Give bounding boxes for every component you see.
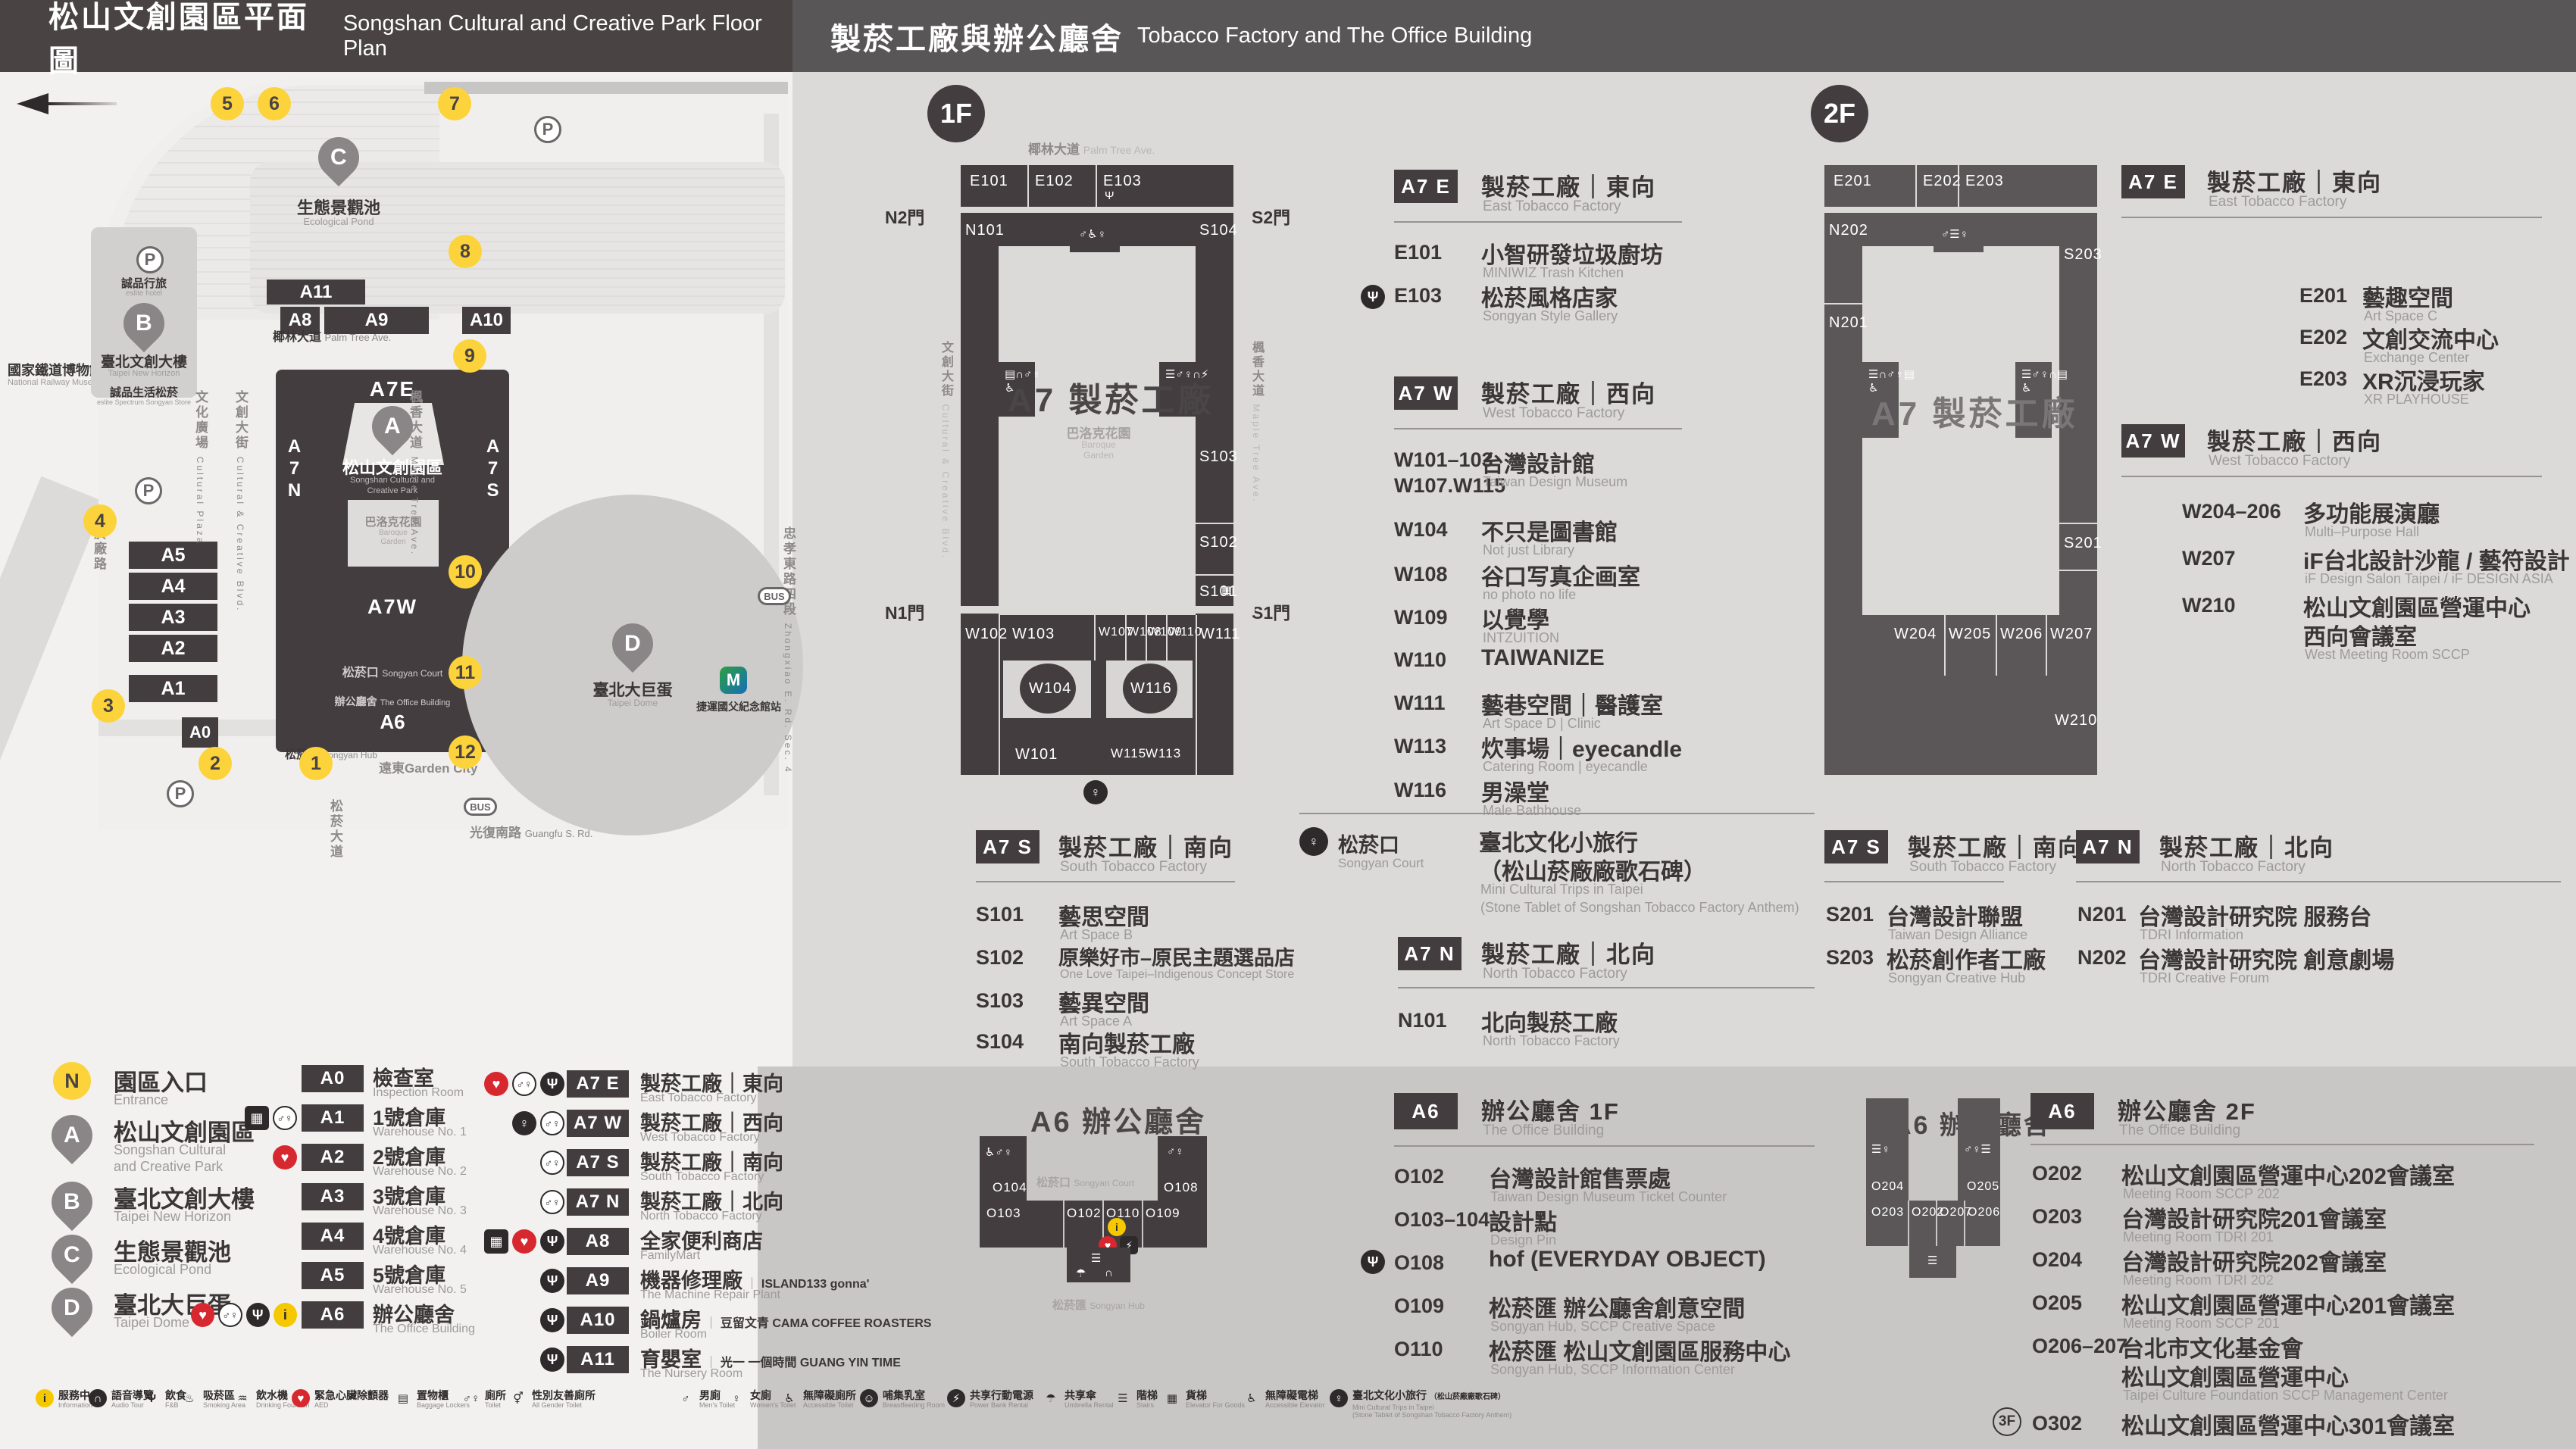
f1-a7w-item-code: W108: [1394, 563, 1448, 586]
f2-room-n201: N201: [1829, 314, 1868, 332]
f1-vline: [1196, 615, 1197, 775]
f2-divider: [2059, 570, 2097, 571]
legend-a3-en: Warehouse No. 3: [373, 1204, 467, 1218]
a6f1-court-label: 松菸口 Songyan Court: [1036, 1174, 1134, 1190]
legend-a7s-badge: A7 S: [567, 1149, 629, 1176]
a6f2-item-code: O203: [2032, 1205, 2082, 1229]
stairs-icon: ☰: [1114, 1389, 1132, 1407]
toilet-icon: ♂♀: [1167, 1145, 1184, 1158]
legend-a6-en: The Office Building: [373, 1323, 475, 1336]
facility-breastfeeding: ☺哺集乳室Breastfeeding Room: [860, 1389, 945, 1409]
f1-gate-s2: S2門: [1252, 203, 1290, 229]
f2-a7s-item-code: S203: [1826, 946, 1874, 970]
mrt-station-label: 捷運國父紀念館站: [686, 699, 792, 714]
baroque-label-en1: Baroque: [348, 529, 439, 537]
food-icon: Ψ: [1105, 189, 1114, 202]
eslite-hotel-zh: 誠品行旅: [98, 275, 189, 291]
f1-room-w102: W102: [965, 626, 1008, 643]
f2-room-n202: N202: [1829, 222, 1868, 239]
f1-a7s-title-zh: 製菸工廠｜南向: [1058, 829, 1233, 863]
inspection-a0: A0: [182, 717, 218, 748]
f1-a7w-item-en: Not just Library: [1483, 542, 1574, 558]
smoking-icon: ♨: [180, 1389, 199, 1407]
f1-room-e101: E101: [970, 173, 1008, 190]
entrance-7: 7: [438, 87, 471, 120]
f1-a7s-item-code: S102: [976, 946, 1024, 970]
elevator-icon: ▦: [1221, 583, 1232, 597]
f2-room-w210: W210: [2055, 712, 2097, 729]
a6f1-room-o103: O103: [986, 1206, 1021, 1221]
facility-aed: ♥緊急心臟除顫器AED: [292, 1389, 389, 1409]
facility-mens: ♂男廁Men's Toilet: [677, 1389, 735, 1409]
a7e-map-label: A7E: [276, 377, 509, 401]
umbrella-icon: ☂: [1042, 1389, 1060, 1407]
f2-a7s-title-zh: 製菸工廠｜南向: [1908, 829, 2083, 863]
food-icon: Ψ: [246, 1303, 270, 1327]
f1-a7w-item-code: W113: [1394, 735, 1446, 758]
legend-a7w-badge: A7 W: [567, 1110, 629, 1137]
f1-a7w-title-en: West Tobacco Factory: [1483, 405, 1624, 422]
legend-a8-badge: A8: [567, 1228, 629, 1255]
a6f2-item-en: Meeting Room TDRI 202: [2123, 1273, 2274, 1288]
parking-icon: P: [135, 477, 162, 504]
toilet-icon: ☰♀: [1871, 1142, 1890, 1156]
eslite-hotel-en: eslite hotel: [98, 289, 189, 298]
f1-a7w-item-en: Catering Room | eyecandle: [1483, 759, 1648, 775]
divider: [1394, 1145, 1815, 1147]
womens-icon: ♀: [727, 1389, 746, 1407]
f1-a7n-item-en: North Tobacco Factory: [1483, 1033, 1620, 1049]
legend-a7s-en: South Tobacco Factory: [640, 1170, 764, 1184]
a6f1-item-en: Taiwan Design Museum Ticket Counter: [1490, 1189, 1727, 1205]
a6f1-room-o109: O109: [1146, 1206, 1180, 1221]
legend-a7w-en: West Tobacco Factory: [640, 1131, 760, 1145]
legend-pin-d: D: [43, 1279, 101, 1337]
f1-vline: [1094, 615, 1096, 660]
f2-a7w-item-en: Multi–Purpose Hall: [2305, 524, 2419, 540]
legend-c-en: Ecological Pond: [114, 1262, 211, 1278]
f1-baroque-en2: Garden: [1046, 450, 1152, 461]
f1-a7w-item-en: Art Space D | Clinic: [1483, 716, 1601, 732]
legend-a7n-icons: ♂♀: [474, 1190, 564, 1214]
f2-a7w-title-zh: 製菸工廠｜西向: [2207, 423, 2382, 457]
aed-icon: ♥: [484, 1072, 508, 1096]
elevator-icon: ▦: [245, 1106, 269, 1130]
legend-a7e-en: East Tobacco Factory: [640, 1091, 757, 1105]
f2-a7n-item-en: TDRI Information: [2140, 927, 2243, 943]
f2-vline: [2046, 615, 2047, 676]
legend-a2-icons: ♥: [206, 1145, 297, 1170]
f2-room-divider: [1915, 165, 1917, 207]
legend-a7s-icons: ♂♀: [474, 1151, 564, 1175]
f1-room-s103: S103: [1199, 448, 1238, 466]
warehouse-a5: A5: [129, 542, 217, 569]
f2-plan-title: A7 製菸工廠: [1871, 386, 2077, 435]
f2-a7w-item-code: W207: [2182, 547, 2236, 570]
legend-a6-badge: A6: [302, 1301, 364, 1329]
legend-a7e-badge: A7 E: [567, 1070, 629, 1098]
legend-a1-icons: ▦♂♀: [206, 1106, 297, 1130]
a6f1-divider: [1063, 1201, 1064, 1248]
f1-a7w-item-en: Male Bathhouse: [1483, 803, 1581, 819]
f1-a7w-item-code: W104: [1394, 518, 1448, 542]
facility-mini-trips: ♀臺北文化小旅行 （松山菸廠廠歌石碑）Mini Cultural Trips i…: [1330, 1389, 1512, 1419]
warehouse-a1: A1: [129, 675, 217, 702]
a6f1-title-en: The Office Building: [1483, 1123, 1604, 1139]
entrance-8: 8: [449, 235, 482, 268]
entrance-3: 3: [92, 689, 125, 723]
f1-room-w103: W103: [1012, 626, 1055, 643]
audio-tour-icon: ∩: [89, 1389, 107, 1407]
elevator-icon: ▦: [484, 1229, 508, 1254]
a6f1-item-zh: hof (EVERYDAY OBJECT): [1489, 1247, 1766, 1273]
f2-a7n-title-en: North Tobacco Factory: [2161, 859, 2306, 876]
legend-entrance-en: Entrance: [114, 1092, 168, 1108]
f2-room-w207: W207: [2050, 626, 2093, 643]
f2-a7e-item-en: XR PLAYHOUSE: [2364, 392, 2469, 408]
a6f1-item-en: Songyan Hub, SCCP Information Center: [1490, 1362, 1735, 1378]
a6f2-divider: [1964, 1201, 1965, 1246]
f2-a7e-title-en: East Tobacco Factory: [2209, 194, 2346, 211]
f1-divider: [1196, 574, 1233, 576]
f1-baroque-en1: Baroque: [1046, 439, 1152, 450]
f1-a7e-title-en: East Tobacco Factory: [1483, 198, 1621, 215]
facility-goods-elevator: ▦貨梯Elevator For Goods: [1163, 1389, 1245, 1409]
f1-room-n101: N101: [965, 222, 1005, 239]
legend-a10-en: Boiler Room: [640, 1328, 707, 1341]
a6f1-title-zh: 辦公廳舍 1F: [1481, 1092, 1620, 1126]
a6f2-3f-circle: 3F: [1993, 1407, 2021, 1436]
legend-entrance-icon: N: [53, 1062, 91, 1100]
toilet-icon: ♂♀: [273, 1106, 297, 1130]
street-maple-ave: 楓香大道 Maple Tree Ave.: [405, 390, 424, 556]
f1-a7e-title-zh: 製菸工廠｜東向: [1481, 168, 1656, 202]
info-icon: i: [1108, 1218, 1126, 1236]
baroque-label-zh: 巴洛克花園: [348, 514, 439, 529]
f1-a7w-title-zh: 製菸工廠｜西向: [1481, 375, 1656, 409]
street-guangfu: 光復南路 Guangfu S. Rd.: [470, 822, 592, 841]
a6f2-item-code: O302: [2032, 1412, 2082, 1435]
umbrella-icon: ☂: [1076, 1266, 1086, 1280]
f1-room-w116: W116: [1130, 680, 1172, 698]
f2-a7e-item-code: E203: [2299, 367, 2347, 391]
food-icon: Ψ: [540, 1229, 564, 1254]
mini-trips-icon: ♀: [1299, 827, 1328, 856]
toilet-icon: ♂♀: [462, 1389, 480, 1407]
a6f2-divider: [1908, 1201, 1909, 1246]
a6f2-title-en: The Office Building: [2119, 1123, 2240, 1139]
legend-a11-icons: Ψ: [474, 1348, 564, 1372]
f2-room-w204: W204: [1894, 626, 1937, 643]
f2-room-s203: S203: [2064, 246, 2102, 264]
f2-a7w-item-en: West Meeting Room SCCP: [2305, 647, 2470, 663]
entrance-6: 6: [258, 87, 291, 120]
food-icon: Ψ: [1361, 1250, 1385, 1274]
f1-a7s-item-code: S101: [976, 903, 1024, 926]
f1-divider: [1196, 523, 1233, 524]
legend-a7w-icons: ♀♂♀: [474, 1111, 564, 1135]
floor-plan-poster: 松山文創園區平面圖 Songshan Cultural and Creative…: [0, 0, 2576, 1449]
a6f2-badge: A6: [2030, 1093, 2094, 1129]
a6f1-item-code: O109: [1394, 1294, 1444, 1318]
f1-room-e102: E102: [1035, 173, 1074, 190]
a6f1-badge: A6: [1394, 1093, 1458, 1129]
legend-a9-badge: A9: [567, 1267, 629, 1294]
f2-a7w-title-en: West Tobacco Factory: [2209, 453, 2350, 470]
street-cc-blvd: 文創大街 Cultural & Creative Blvd.: [231, 390, 250, 612]
f1-street-top: 椰林大道 Palm Tree Ave.: [1028, 139, 1155, 158]
park-name-en2: Creative Park: [276, 486, 509, 495]
new-horizon-zh: 臺北文創大樓: [72, 351, 216, 371]
warehouse-a10: A10: [462, 307, 511, 334]
legend-a9-en: The Machine Repair Plant: [640, 1288, 780, 1302]
a6f2-room-o206: O206: [1968, 1206, 2000, 1219]
f2-a7s-title-en: South Tobacco Factory: [1909, 859, 2056, 876]
divider: [2030, 1144, 2534, 1145]
f1-gate-n1: N1門: [885, 598, 924, 624]
f1-room-s102: S102: [1199, 534, 1238, 551]
a6f2-item-code: O204: [2032, 1248, 2082, 1272]
aed-icon: ♥: [273, 1145, 297, 1170]
f2-a7w-item-code: W204–206: [2182, 500, 2281, 523]
f2-a7n-item-en: TDRI Creative Forum: [2140, 970, 2269, 986]
legend-pin-b: B: [43, 1173, 101, 1231]
toilet-icon: ♿♂♀: [985, 1145, 1012, 1159]
f2-a7s-item-en: Songyan Creative Hub: [1888, 970, 2025, 986]
bus-stop-icon: BUS: [464, 798, 497, 816]
facility-power-bank: ⚡共享行動電源Power Bank Rental: [947, 1389, 1033, 1409]
a6f2-item-code: O206–207: [2032, 1335, 2127, 1358]
f1-a7w-item-code: W110: [1394, 648, 1446, 672]
f2-a7e-item-code: E201: [2299, 284, 2347, 308]
divider: [1824, 881, 2004, 882]
warehouse-a11: A11: [267, 279, 365, 304]
divider: [1394, 221, 1682, 223]
goods-elevator-icon: ▦: [1163, 1389, 1181, 1407]
legend-a10-badge: A10: [567, 1307, 629, 1334]
f2-a7w-badge: A7 W: [2121, 424, 2185, 457]
divider: [1398, 987, 1815, 988]
divider: [2121, 476, 2542, 477]
aed-icon: ♥: [292, 1389, 310, 1407]
legend-a2-en: Warehouse No. 2: [373, 1165, 467, 1179]
facility-lockers: ▤置物櫃Baggage Lockers: [394, 1389, 470, 1409]
a6f1-item-en: Songyan Hub, SCCP Creative Space: [1490, 1319, 1715, 1335]
legend-a1-badge: A1: [302, 1104, 364, 1132]
facility-accessible-elevator: ♿無障礙電梯Accessible Elevator: [1243, 1389, 1325, 1409]
entrance-5: 5: [211, 87, 244, 120]
f1-vline: [1166, 615, 1168, 660]
f2-a7w-item-code: W210: [2182, 594, 2236, 617]
parking-icon: P: [167, 780, 194, 807]
a6f1-item-code: O110: [1394, 1338, 1443, 1361]
toilet-icon: ♂♀: [512, 1072, 536, 1096]
f2-a7e-title-zh: 製菸工廠｜東向: [2207, 164, 2382, 198]
accessible-elevator-icon: ♿: [1243, 1389, 1261, 1407]
court-name-en1: Mini Cultural Trips in Taipei: [1480, 882, 1643, 898]
section-title-en: Tobacco Factory and The Office Building: [1137, 23, 1532, 48]
a6f2-divider: [1936, 1201, 1937, 1246]
f1-a7w-item-code: W116: [1394, 779, 1446, 802]
a6f1-item-en: Design Pin: [1490, 1232, 1556, 1248]
toilet-cluster-icon: ♂♿♀: [1079, 227, 1106, 241]
f1-road-s1n1: [939, 606, 1255, 614]
mini-trips-icon: ♀: [1083, 780, 1108, 804]
nursing-icon: ☺: [860, 1389, 878, 1407]
f1-room-e103: E103: [1103, 173, 1142, 190]
page-title-en: Songshan Cultural and Creative Park Floo…: [343, 11, 792, 61]
facility-stairs: ☰階梯Stairs: [1114, 1389, 1158, 1409]
f1-a7w-item-en: Taiwan Design Museum: [1483, 474, 1627, 490]
stairs-icon: ☰: [1927, 1254, 1937, 1267]
f2-a7n-badge: A7 N: [2076, 830, 2140, 863]
legend-a4-en: Warehouse No. 4: [373, 1244, 467, 1257]
f1-a7s-item-zh: 原樂好市–原民主題選品店: [1058, 942, 1295, 971]
toilet-icon: ♂♀: [218, 1303, 242, 1327]
a6f2-item-en: Meeting Room TDRI 201: [2123, 1229, 2274, 1245]
a7s-map-label: A7S: [482, 436, 503, 502]
legend-a7e-icons: ♥♂♀Ψ: [474, 1072, 564, 1096]
baroque-label-en2: Garden: [348, 538, 439, 546]
new-horizon-en: Taipei New Horizon: [72, 369, 216, 378]
legend-a5-badge: A5: [302, 1262, 364, 1289]
a6f2-room-o204: O204: [1871, 1180, 1904, 1194]
f1-a7s-item-code: S103: [976, 989, 1024, 1013]
audio-icon: ∩: [1105, 1266, 1113, 1279]
a6f1-item-code: O102: [1394, 1165, 1444, 1188]
a6f2-item-en: Taipei Culture Foundation SCCP Managemen…: [2123, 1388, 2448, 1404]
mrt-logo-icon: M: [720, 667, 747, 694]
f1-gate-s1: S1門: [1252, 598, 1290, 624]
divider: [1299, 813, 1815, 814]
food-icon: Ψ: [540, 1269, 564, 1293]
f1-a7w-item-en: INTZUITION: [1483, 630, 1559, 646]
f2-a7n-title-zh: 製菸工廠｜北向: [2159, 829, 2334, 863]
header-right: 製菸工廠與辦公廳舍 Tobacco Factory and The Office…: [792, 0, 2576, 72]
north-arrow-tail: [48, 102, 117, 105]
legend-a7n-badge: A7 N: [567, 1188, 629, 1216]
f1-a7s-item-en: South Tobacco Factory: [1060, 1054, 1199, 1070]
a6f2-item-code: O205: [2032, 1291, 2082, 1315]
legend-a8-en: FamilyMart: [640, 1249, 700, 1263]
f1-a7w-badge: A7 W: [1394, 376, 1458, 410]
court-label-en: Songyan Court: [1338, 856, 1424, 871]
section-title-zh: 製菸工廠與辦公廳舍: [830, 14, 1124, 58]
a6f1-room-o108: O108: [1164, 1180, 1199, 1195]
food-icon: Ψ: [540, 1308, 564, 1332]
f2-room-e203: E203: [1965, 173, 2004, 190]
legend-pin-a: A: [43, 1107, 101, 1164]
f1-a7n-badge: A7 N: [1398, 937, 1462, 970]
legend-a10-icons: Ψ: [474, 1308, 564, 1332]
f2-room-w205: W205: [1949, 626, 1991, 643]
f1-street-left: 文創大街 Cultural & Creative Blvd.: [936, 341, 955, 560]
aed-icon: ♥: [512, 1229, 536, 1254]
facility-all-gender: ⚥性別友善廁所All Gender Toilet: [509, 1389, 596, 1409]
park-name-en1: Songshan Cultural and: [276, 476, 509, 485]
f2-a7s-badge: A7 S: [1824, 830, 1888, 863]
f1-room-w111: W111: [1200, 626, 1240, 643]
warehouse-a4: A4: [129, 573, 217, 600]
food-icon: Ψ: [540, 1348, 564, 1372]
f1-room-w115: W115: [1111, 746, 1146, 761]
park-map: 國家鐵道博物館 National Railway Museum C 生態景觀池 …: [0, 72, 792, 1066]
f1-room-divider: [1027, 165, 1029, 207]
mini-trips-icon: ♀: [512, 1111, 536, 1135]
f1-vline: [1125, 615, 1127, 660]
legend-a0-badge: A0: [302, 1065, 364, 1092]
bus-stop-icon: BUS: [758, 587, 791, 605]
a6f2-item-zh: 松山文創園區營運中心301會議室: [2121, 1407, 2455, 1441]
f2-room-e202: E202: [1923, 173, 1962, 190]
road-top: [424, 82, 788, 94]
f1-room-w113: W113: [1146, 746, 1181, 761]
f1-a7s-item-en: One Love Taipei–Indigenous Concept Store: [1060, 968, 1294, 982]
warehouse-a2: A2: [129, 635, 217, 662]
mens-icon: ♂: [677, 1389, 695, 1407]
f1-room-w104: W104: [1029, 680, 1071, 698]
f1-a7w-item-code: W101–103: [1394, 448, 1493, 472]
legend-a8-icons: ▦♥Ψ: [474, 1229, 564, 1254]
toilet-icon: ♂♀☰: [1964, 1142, 1991, 1156]
f1-room-w101: W101: [1015, 746, 1058, 764]
accessible-icon: ♿: [780, 1389, 799, 1407]
f2-a7e-badge: A7 E: [2121, 165, 2185, 198]
warehouse-a3: A3: [129, 604, 217, 631]
f2-a7e-item-code: E202: [2299, 326, 2347, 349]
f1-a7w-item-code: W109: [1394, 606, 1448, 629]
a6f1-divider: [1142, 1201, 1143, 1248]
entrance-12: 12: [449, 735, 482, 769]
a6f2-room-o203: O203: [1871, 1206, 1904, 1219]
f2-vline: [1996, 615, 1997, 676]
a6f1-item-code: O103–104: [1394, 1208, 1490, 1232]
food-icon: Ψ: [142, 1389, 161, 1407]
a6f2-title-zh: 辦公廳舍 2F: [2118, 1092, 2256, 1126]
page-title-zh: 松山文創園區平面圖: [48, 0, 330, 80]
divider: [2121, 217, 2542, 218]
legend-a7n-en: North Tobacco Factory: [640, 1210, 762, 1223]
legend-a4-badge: A4: [302, 1223, 364, 1250]
parking-icon: P: [136, 246, 164, 273]
legend-b-en: Taipei New Horizon: [114, 1209, 231, 1225]
toilet-icon: ♂♀: [540, 1151, 564, 1175]
f2-divider: [1824, 303, 1862, 304]
a6f1-room-o102: O102: [1067, 1206, 1102, 1221]
f1-a7e-item-code: E101: [1394, 241, 1442, 264]
f1-a7w-item-code: W111: [1394, 692, 1446, 715]
f1-plan-title: A7 製菸工廠: [1008, 373, 1214, 421]
a6f2-item-en: Meeting Room SCCP 201: [2123, 1316, 2280, 1332]
f2-room-w206: W206: [2000, 626, 2043, 643]
a6f1-hub-label: 松菸匯 Songyan Hub: [1030, 1297, 1167, 1313]
street-zhongxiao: 忠孝東路四段 Zhongxiao E. Rd. Sec. 4: [779, 526, 798, 774]
facility-umbrella: ☂共享傘Umbrella Rental: [1042, 1389, 1114, 1409]
f1-a7e-item-code: E103: [1394, 284, 1442, 308]
a6f1-item-code: O108: [1394, 1251, 1444, 1275]
f2-room-e201: E201: [1834, 173, 1872, 190]
info-icon: i: [36, 1389, 54, 1407]
food-icon: Ψ: [540, 1072, 564, 1096]
entrance-10: 10: [449, 555, 482, 589]
divider: [2076, 881, 2561, 882]
f1-room-s104: S104: [1199, 222, 1238, 239]
a6f2-room-o205: O205: [1967, 1180, 1999, 1194]
header-left: 松山文創園區平面圖 Songshan Cultural and Creative…: [0, 0, 792, 72]
palm-ave-label: 椰林大道 Palm Tree Ave.: [273, 326, 391, 345]
food-icon: Ψ: [1361, 285, 1385, 309]
legend-a6-icons: ♥♂♀Ψi: [191, 1303, 297, 1327]
